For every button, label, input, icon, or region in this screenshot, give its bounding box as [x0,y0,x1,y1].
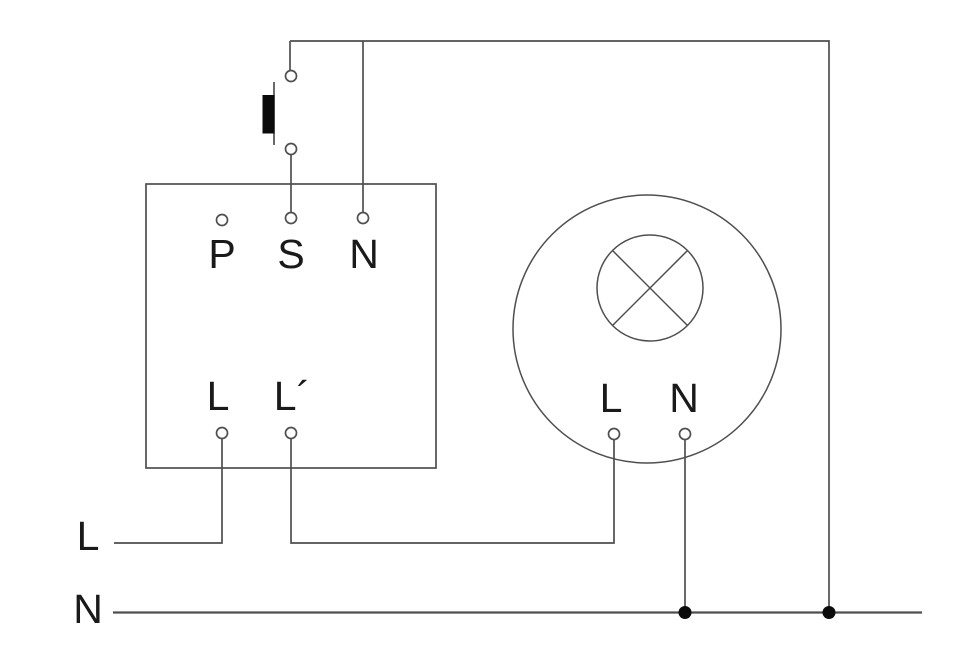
luminaire-terminal-l [609,429,620,440]
luminaire-n-label: N [669,375,699,421]
supply-live-label: L [77,513,100,559]
wire-top-and-right-drop [290,41,829,613]
push-button-contact-bottom [286,144,297,155]
terminal-l-label: L [207,373,230,419]
wires [113,41,922,613]
luminaire: L N [513,195,781,463]
wire-switched-live [291,439,614,543]
terminal-l [217,428,228,439]
wire-live-feed [114,439,222,543]
terminal-n-label: N [349,231,379,277]
terminal-l-prime [286,428,297,439]
wiring-diagram-canvas: P S N L L´ L N L N [0,0,970,658]
supply-neutral-label: N [73,586,103,632]
push-button-body-icon [263,95,275,134]
junction-dot [823,606,836,619]
junction-dot [679,606,692,619]
terminal-p [217,215,228,226]
terminal-p-label: P [208,231,235,277]
push-button [263,71,297,155]
terminal-s [286,213,297,224]
luminaire-l-label: L [600,375,623,421]
terminal-l-prime-label: L´ [274,373,310,419]
sensor-box-outline [146,184,436,468]
push-button-contact-top [286,71,297,82]
supply-labels: L N [73,513,103,632]
terminal-n [358,213,369,224]
sensor-box: P S N L L´ [146,184,436,468]
lamp-icon [597,235,703,341]
wiring-diagram-page: P S N L L´ L N L N [0,0,970,658]
luminaire-terminal-n [680,429,691,440]
terminal-s-label: S [277,231,304,277]
